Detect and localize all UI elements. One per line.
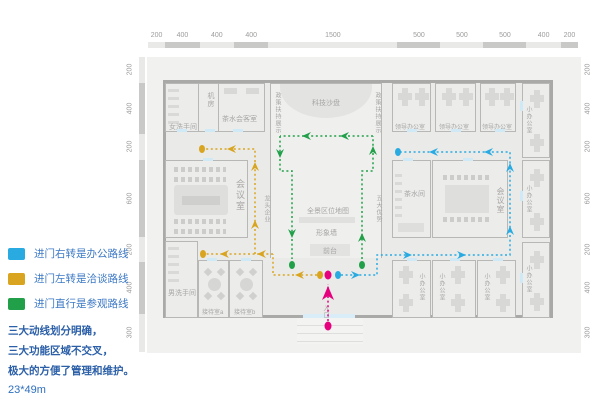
legend-item-office-route: 进门右转是办公路线: [8, 246, 143, 261]
dim-number-text: 400: [585, 282, 592, 294]
visit-endpoint: [359, 261, 365, 269]
dim-number: 1500: [268, 27, 397, 39]
dim-number-text: 400: [177, 32, 189, 39]
dim-number: 400: [124, 83, 136, 134]
talk-route-line: [273, 254, 317, 275]
talk-endpoint: [199, 145, 205, 153]
talk-arrow: [251, 220, 259, 229]
dim-number-text: 500: [413, 32, 425, 39]
office-arrow: [457, 251, 466, 259]
dim-number-text: 400: [211, 32, 223, 39]
legend-label: 进门右转是办公路线: [34, 246, 129, 261]
visit-arrow: [340, 132, 349, 140]
talk-arrow: [257, 250, 266, 258]
dim-number: 400: [200, 27, 234, 39]
dim-number: 400: [234, 27, 268, 39]
legend-label: 进门直行是参观路线: [34, 296, 129, 311]
talk-route-line: [202, 149, 255, 254]
plan-size-note: 23*49m: [8, 384, 143, 396]
dim-bar-segment: [526, 42, 560, 48]
dim-number-text: 200: [151, 32, 163, 39]
legend-summary: 三大动线划分明确，三大功能区域不交叉，极大的方便了管理和维护。: [8, 321, 143, 381]
dim-number-text: 200: [564, 32, 576, 39]
visit-route-swatch: [8, 298, 25, 310]
dim-number-text: 400: [127, 102, 134, 114]
dimension-numbers-top: 2004004004001500500500500400200: [148, 27, 578, 39]
dimension-bar-top: [148, 42, 578, 48]
office-arrow: [484, 148, 493, 156]
visit-arrow: [302, 132, 311, 140]
dim-number-text: 200: [585, 141, 592, 153]
legend-item-visit-route: 进门直行是参观路线: [8, 296, 143, 311]
dim-number-text: 400: [585, 102, 592, 114]
dim-number-text: 400: [245, 32, 257, 39]
floor-plan-infographic: 2004004004001500500500500400200 20040020…: [0, 0, 600, 400]
dim-number-text: 200: [127, 141, 134, 153]
dim-bar-segment: [268, 42, 397, 48]
dim-number: 500: [483, 27, 526, 39]
entry-junction: [325, 271, 332, 280]
dim-bar-segment: [148, 42, 165, 48]
dim-bar-segment: [483, 42, 526, 48]
office-start: [335, 271, 341, 279]
dim-number: 200: [124, 134, 136, 160]
dim-number: 600: [124, 160, 136, 237]
legend-summary-line: 极大的方便了管理和维护。: [8, 361, 143, 381]
office-route-swatch: [8, 248, 25, 260]
talk-endpoint: [200, 250, 206, 258]
legend: 进门右转是办公路线进门左转是洽谈路线进门直行是参观路线 三大动线划分明确，三大功…: [8, 246, 143, 396]
dim-bar-segment: [397, 42, 440, 48]
dim-number-text: 400: [538, 32, 550, 39]
dim-bar-segment: [200, 42, 234, 48]
dim-number: 200: [124, 57, 136, 83]
legend-summary-line: 三大动线划分明确，: [8, 321, 143, 341]
visit-arrow: [358, 233, 366, 242]
visit-route-line: [362, 136, 373, 259]
dim-number-text: 1500: [325, 32, 341, 39]
legend-items: 进门右转是办公路线进门左转是洽谈路线进门直行是参观路线: [8, 246, 143, 311]
dim-number-text: 200: [585, 64, 592, 76]
entry-point: [325, 322, 332, 331]
legend-summary-line: 三大功能区域不交叉，: [8, 341, 143, 361]
office-arrow: [351, 271, 360, 279]
dim-bar-segment: [234, 42, 268, 48]
dim-number-text: 200: [127, 64, 134, 76]
office-endpoint: [395, 148, 401, 156]
dim-number: 400: [165, 27, 199, 39]
dim-number-text: 200: [585, 244, 592, 256]
dim-number: 500: [397, 27, 440, 39]
talk-route-swatch: [8, 273, 25, 285]
dim-number-text: 500: [456, 32, 468, 39]
dim-bar-segment: [440, 42, 483, 48]
office-arrow: [506, 226, 514, 235]
legend-item-talk-route: 进门左转是洽谈路线: [8, 271, 143, 286]
talk-start: [317, 271, 323, 279]
talk-arrow: [220, 250, 229, 258]
building-plan: 女洗手间 机房 茶水会客室 科技沙盘 政策扶持展示 政策扶持展示 全景区位地图 …: [145, 55, 585, 355]
dim-number-text: 600: [585, 192, 592, 204]
visit-route-line: [280, 136, 292, 259]
route-lines: [145, 55, 585, 355]
dim-number: 400: [526, 27, 560, 39]
legend-label: 进门左转是洽谈路线: [34, 271, 129, 286]
dim-bar-segment: [165, 42, 199, 48]
dim-number-text: 500: [499, 32, 511, 39]
dim-number-text: 300: [585, 327, 592, 339]
visit-endpoint: [289, 261, 295, 269]
dim-number: 200: [561, 27, 578, 39]
dim-number: 500: [440, 27, 483, 39]
dim-number: 200: [148, 27, 165, 39]
dim-bar-segment: [561, 42, 578, 48]
dim-number-text: 600: [127, 192, 134, 204]
